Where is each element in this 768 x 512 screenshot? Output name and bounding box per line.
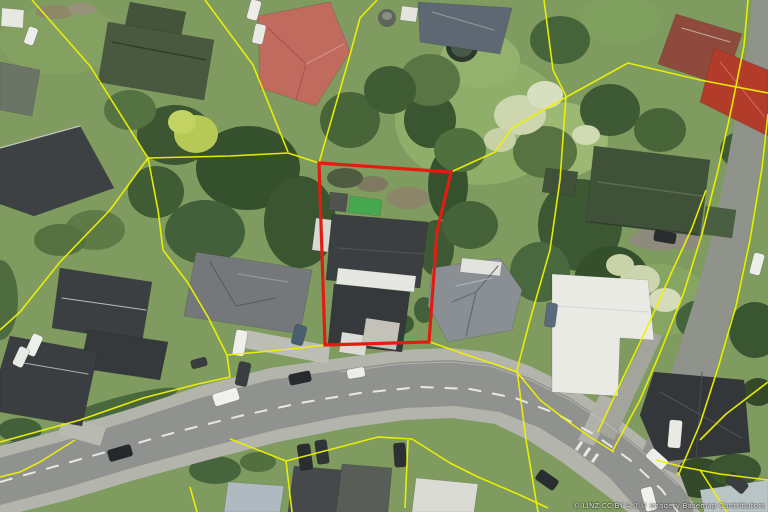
van-white-driveway [667, 419, 682, 448]
shed-top-middle [400, 6, 418, 22]
house-green-right [586, 146, 710, 236]
house-bottom-center-a [288, 466, 342, 512]
house-bottom-left-blue [224, 482, 284, 512]
car-dark-parked [393, 443, 407, 468]
house-bottom-white [412, 478, 478, 512]
house-bottom-center-b [336, 464, 392, 512]
house-dark-bottomright [640, 372, 750, 462]
shed-dark [328, 192, 348, 212]
aerial-svg [0, 0, 768, 512]
aerial-map[interactable]: © LINZ CC BY 4.0 © Imagery Basemap Contr… [0, 0, 768, 512]
house-charcoal-low [0, 336, 98, 426]
shed-topleft [1, 8, 24, 28]
